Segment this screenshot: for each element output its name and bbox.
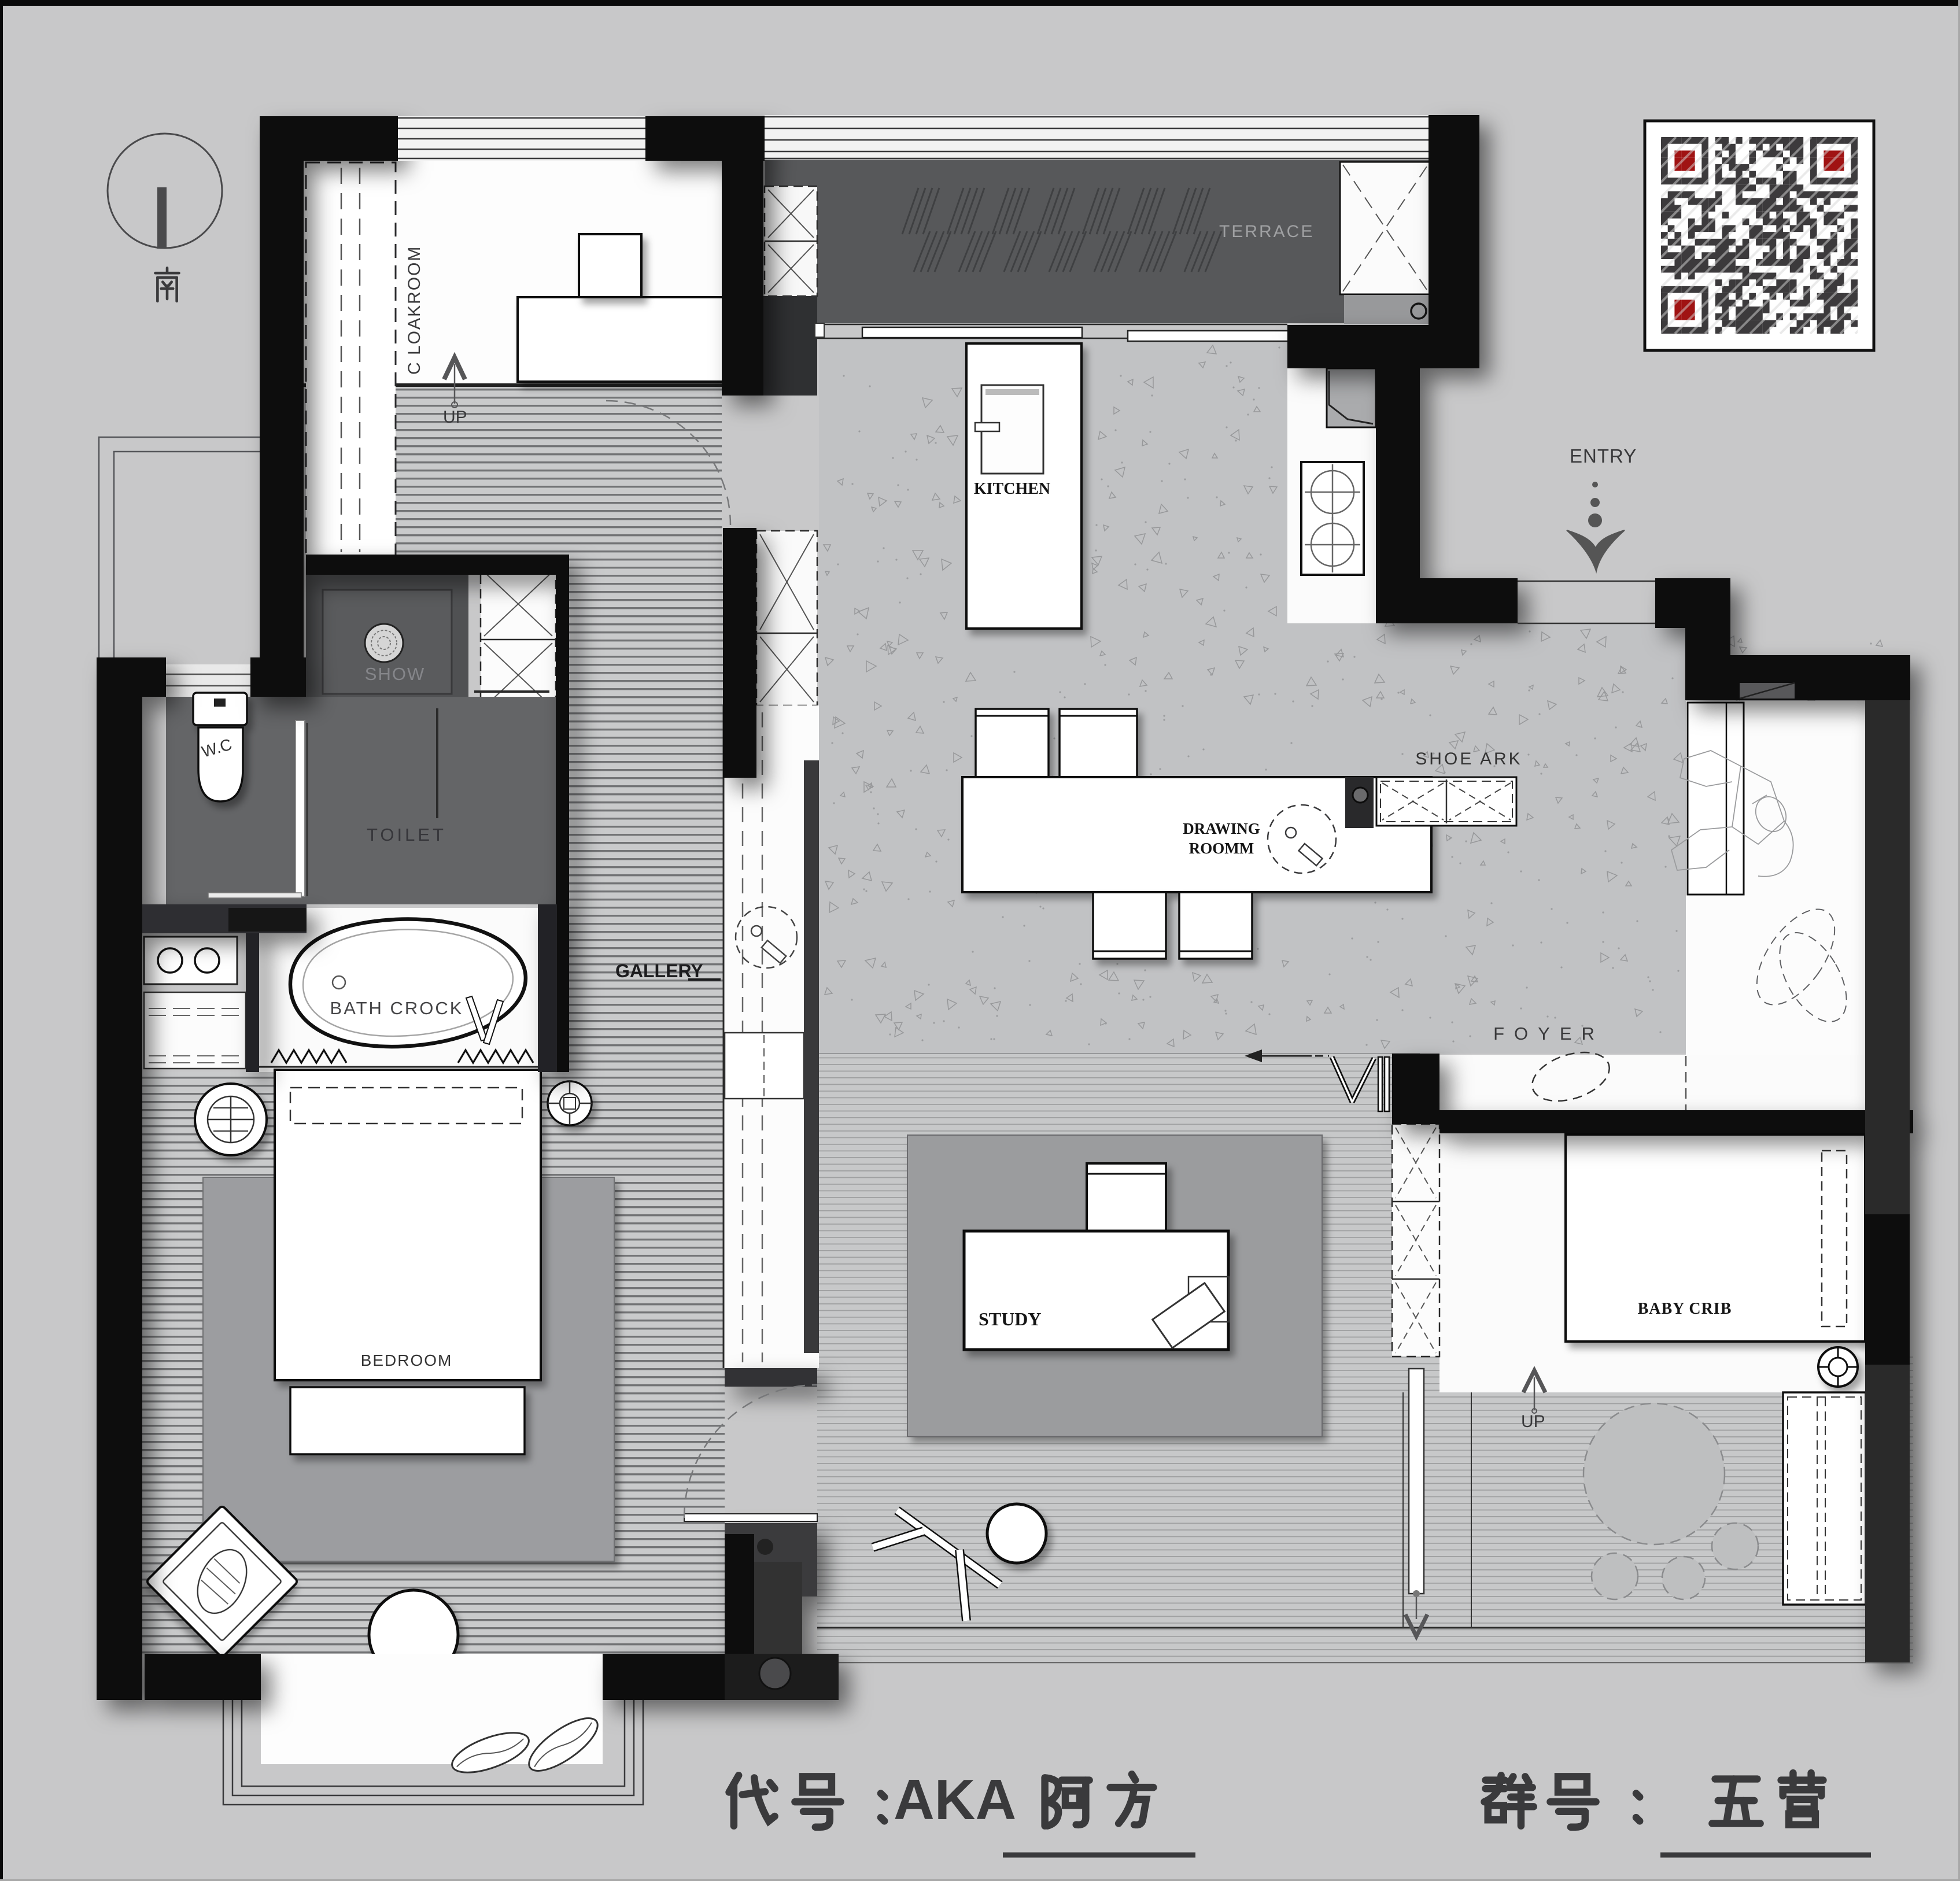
svg-text:KITCHEN: KITCHEN xyxy=(974,480,1050,498)
svg-text:TERRACE: TERRACE xyxy=(1219,222,1314,241)
svg-text:GALLERY: GALLERY xyxy=(615,960,703,981)
svg-text:C LOAKROOM: C LOAKROOM xyxy=(405,246,424,375)
svg-text:STUDY: STUDY xyxy=(979,1309,1041,1329)
svg-text:AKA: AKA xyxy=(894,1768,1016,1831)
svg-text:ENTRY: ENTRY xyxy=(1570,445,1637,467)
svg-text:ROOMM: ROOMM xyxy=(1189,840,1254,857)
svg-text:SHOW: SHOW xyxy=(365,664,425,684)
svg-text:UP: UP xyxy=(443,408,467,427)
svg-text:BEDROOM: BEDROOM xyxy=(361,1351,453,1369)
svg-text:FOYER: FOYER xyxy=(1493,1023,1604,1044)
svg-text:BABY CRIB: BABY CRIB xyxy=(1638,1300,1732,1318)
svg-text:UP: UP xyxy=(1521,1412,1545,1431)
svg-text:SHOE ARK: SHOE ARK xyxy=(1415,749,1522,768)
svg-text:DRAWING: DRAWING xyxy=(1183,820,1260,837)
svg-text:BATH CROCK: BATH CROCK xyxy=(330,998,464,1018)
svg-text:TOILET: TOILET xyxy=(367,825,446,845)
